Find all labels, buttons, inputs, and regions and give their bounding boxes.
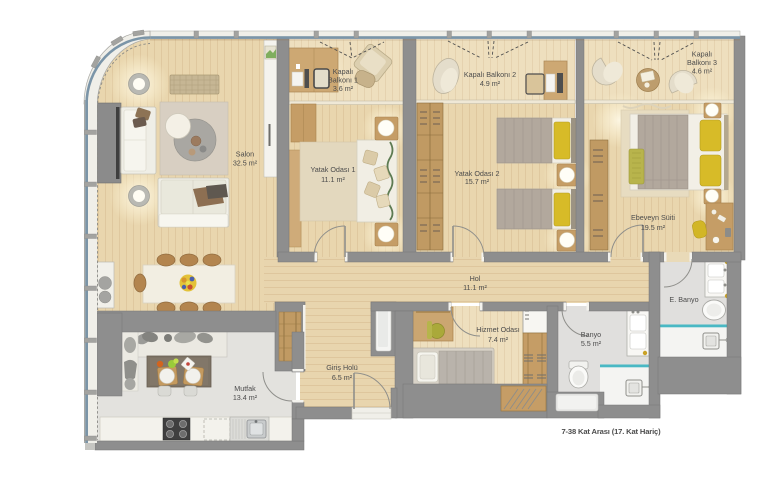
svg-text:4.9 m²: 4.9 m² <box>480 79 501 88</box>
svg-text:15.7 m²: 15.7 m² <box>465 177 490 186</box>
svg-text:7.4 m²: 7.4 m² <box>488 335 509 344</box>
svg-text:32.5 m²: 32.5 m² <box>233 159 258 168</box>
svg-text:Giriş Holü: Giriş Holü <box>326 363 358 372</box>
svg-text:3.6 m²: 3.6 m² <box>333 84 354 93</box>
svg-text:E. Banyo: E. Banyo <box>669 295 698 304</box>
svg-text:6.5 m²: 6.5 m² <box>332 373 353 382</box>
svg-text:Kapalı Balkonı 2: Kapalı Balkonı 2 <box>464 70 516 79</box>
svg-text:4.6 m²: 4.6 m² <box>692 67 713 76</box>
svg-text:5.5 m²: 5.5 m² <box>581 339 602 348</box>
svg-text:19.5 m²: 19.5 m² <box>641 223 666 232</box>
svg-text:Ebeveyn Süiti: Ebeveyn Süiti <box>631 213 675 222</box>
svg-text:Hol: Hol <box>470 274 481 283</box>
svg-text:7-38 Kat Arası (17. Kat Hariç): 7-38 Kat Arası (17. Kat Hariç) <box>561 427 661 436</box>
svg-text:Yatak Odası 1: Yatak Odası 1 <box>310 165 355 174</box>
svg-text:Salon: Salon <box>236 150 254 159</box>
svg-text:13.4 m²: 13.4 m² <box>233 393 258 402</box>
svg-text:Banyo: Banyo <box>581 330 601 339</box>
svg-text:11.1 m²: 11.1 m² <box>321 175 345 184</box>
svg-text:Hizmet Odası: Hizmet Odası <box>476 325 520 334</box>
svg-text:Mutfak: Mutfak <box>234 384 256 393</box>
svg-text:11.1 m²: 11.1 m² <box>463 283 487 292</box>
